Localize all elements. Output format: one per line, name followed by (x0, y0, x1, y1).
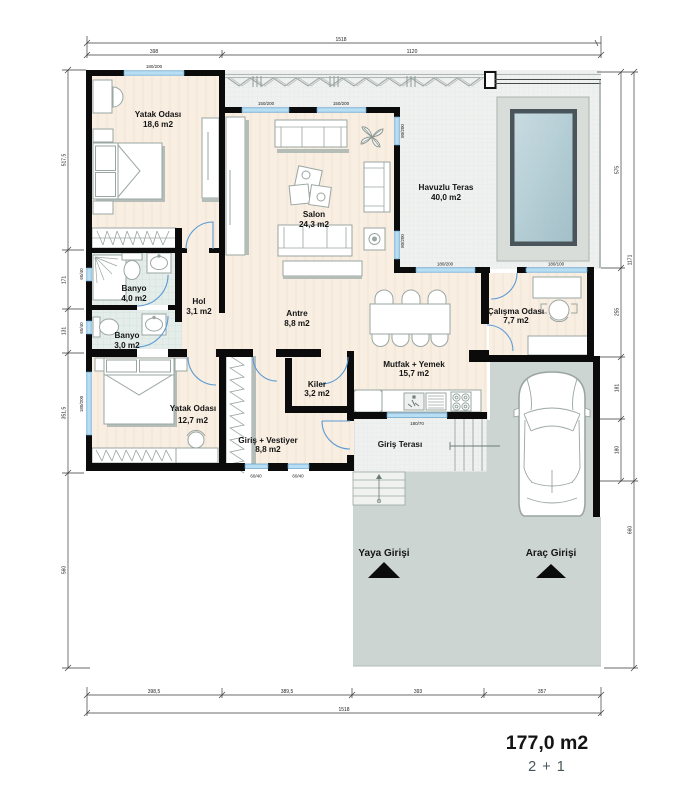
svg-text:171: 171 (62, 276, 68, 285)
svg-text:Yatak Odası: Yatak Odası (135, 110, 181, 119)
svg-text:1171: 1171 (628, 254, 634, 265)
svg-text:180/200: 180/200 (146, 64, 163, 69)
svg-text:Banyo: Banyo (121, 284, 146, 293)
svg-text:180/70: 180/70 (410, 421, 424, 426)
svg-text:351,5: 351,5 (62, 407, 68, 420)
svg-text:1518: 1518 (338, 707, 349, 713)
svg-text:3,2 m2: 3,2 m2 (304, 389, 330, 398)
svg-text:Salon: Salon (303, 210, 325, 219)
svg-text:398: 398 (150, 49, 159, 55)
svg-text:517,5: 517,5 (62, 154, 68, 167)
svg-text:180: 180 (615, 446, 621, 455)
svg-text:Antre: Antre (286, 309, 308, 318)
svg-text:393: 393 (414, 689, 423, 695)
svg-text:180/200: 180/200 (437, 262, 454, 267)
svg-text:1518: 1518 (335, 37, 346, 43)
svg-text:150/200: 150/200 (333, 101, 350, 106)
svg-text:Banyo: Banyo (114, 331, 139, 340)
svg-text:560: 560 (62, 566, 68, 575)
svg-text:398,5: 398,5 (148, 689, 161, 695)
svg-text:15,7 m2: 15,7 m2 (399, 369, 429, 378)
svg-text:Havuzlu Teras: Havuzlu Teras (419, 183, 474, 192)
svg-text:180/100: 180/100 (548, 262, 565, 267)
svg-text:660: 660 (628, 526, 634, 535)
svg-text:12,7 m2: 12,7 m2 (178, 416, 208, 425)
svg-text:60/40: 60/40 (292, 474, 304, 479)
svg-text:24,3 m2: 24,3 m2 (299, 220, 329, 229)
svg-text:60/40: 60/40 (79, 322, 84, 334)
svg-text:4,0 m2: 4,0 m2 (121, 294, 147, 303)
svg-text:Yatak Odası: Yatak Odası (170, 404, 216, 413)
svg-text:Giriş Terası: Giriş Terası (378, 440, 422, 449)
svg-text:131: 131 (62, 327, 68, 336)
svg-text:80/200: 80/200 (400, 124, 405, 138)
svg-text:Hol: Hol (192, 297, 205, 306)
svg-text:150/200: 150/200 (258, 101, 275, 106)
svg-text:177,0 m2: 177,0 m2 (506, 732, 589, 754)
svg-text:Giriş + Vestiyer: Giriş + Vestiyer (238, 436, 298, 445)
svg-text:255: 255 (615, 308, 621, 317)
svg-text:389,5: 389,5 (281, 689, 294, 695)
svg-text:2 + 1: 2 + 1 (528, 759, 566, 775)
svg-text:18,6 m2: 18,6 m2 (143, 120, 173, 129)
svg-text:80/200: 80/200 (400, 234, 405, 248)
svg-text:Araç Girişi: Araç Girişi (526, 548, 577, 559)
svg-text:Kiler: Kiler (308, 380, 327, 389)
svg-text:60/40: 60/40 (250, 474, 262, 479)
svg-text:Yaya Girişi: Yaya Girişi (358, 548, 409, 559)
svg-text:357: 357 (538, 689, 547, 695)
svg-text:181: 181 (615, 384, 621, 393)
svg-text:180/200: 180/200 (79, 395, 84, 412)
svg-text:40,0 m2: 40,0 m2 (431, 193, 461, 202)
svg-text:1120: 1120 (407, 49, 418, 55)
svg-text:575: 575 (615, 166, 621, 175)
svg-text:Mutfak + Yemek: Mutfak + Yemek (383, 360, 445, 369)
svg-text:60/40: 60/40 (79, 268, 84, 280)
svg-text:7,7 m2: 7,7 m2 (503, 316, 529, 325)
svg-text:3,1 m2: 3,1 m2 (186, 307, 212, 316)
svg-text:Çalışma Odası: Çalışma Odası (488, 307, 544, 316)
svg-text:3,0 m2: 3,0 m2 (114, 341, 140, 350)
svg-text:8,8 m2: 8,8 m2 (255, 445, 281, 454)
svg-text:8,8 m2: 8,8 m2 (284, 319, 310, 328)
